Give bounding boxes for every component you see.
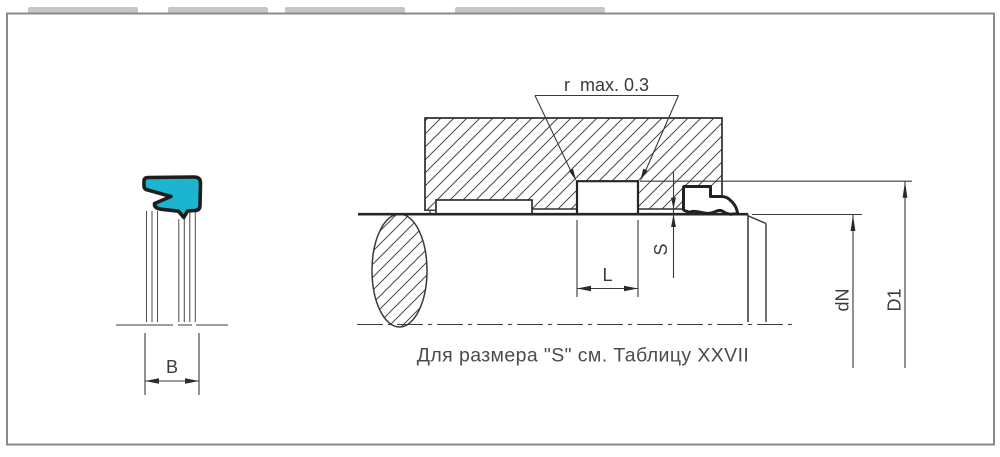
- guide-ring: [436, 200, 532, 214]
- technical-drawing-page: B r max. 0.3: [0, 0, 1000, 457]
- seal-installation-drawing: B r max. 0.3: [0, 0, 1000, 457]
- installation-figure: r max. 0.3 L S dN: [357, 75, 912, 368]
- dim-B-arrow-right: [185, 378, 199, 384]
- rod-break-section: [372, 214, 427, 327]
- dimension-dN: dN: [752, 215, 862, 369]
- housing-hatched-section: [425, 118, 722, 210]
- dim-L-arrow-right: [624, 286, 638, 292]
- seal-groove-outline: [577, 181, 638, 214]
- table-reference-note: Для размера "S" см. Таблицу XXVII: [417, 345, 749, 367]
- dim-dN-label: dN: [833, 288, 853, 311]
- radius-callout-label: r max. 0.3: [564, 75, 649, 95]
- dim-L-arrow-left: [577, 286, 591, 292]
- dim-B-label: B: [166, 357, 178, 377]
- rod: [357, 214, 795, 327]
- dim-B-arrow-left: [145, 378, 159, 384]
- dim-D1-label: D1: [885, 288, 905, 311]
- seal-surface-lines: [147, 211, 196, 322]
- rod-end-chamfer: [749, 216, 767, 322]
- dimension-L: L: [577, 220, 638, 297]
- installed-seal-profile: [684, 187, 738, 215]
- dim-D1-arrow: [903, 182, 908, 198]
- dim-S-arrow-lower: [671, 214, 676, 227]
- dim-S-label: S: [651, 243, 671, 255]
- dim-L-label: L: [602, 265, 612, 285]
- dim-dN-arrow: [851, 215, 856, 231]
- seal-cross-section-figure: B: [116, 177, 228, 395]
